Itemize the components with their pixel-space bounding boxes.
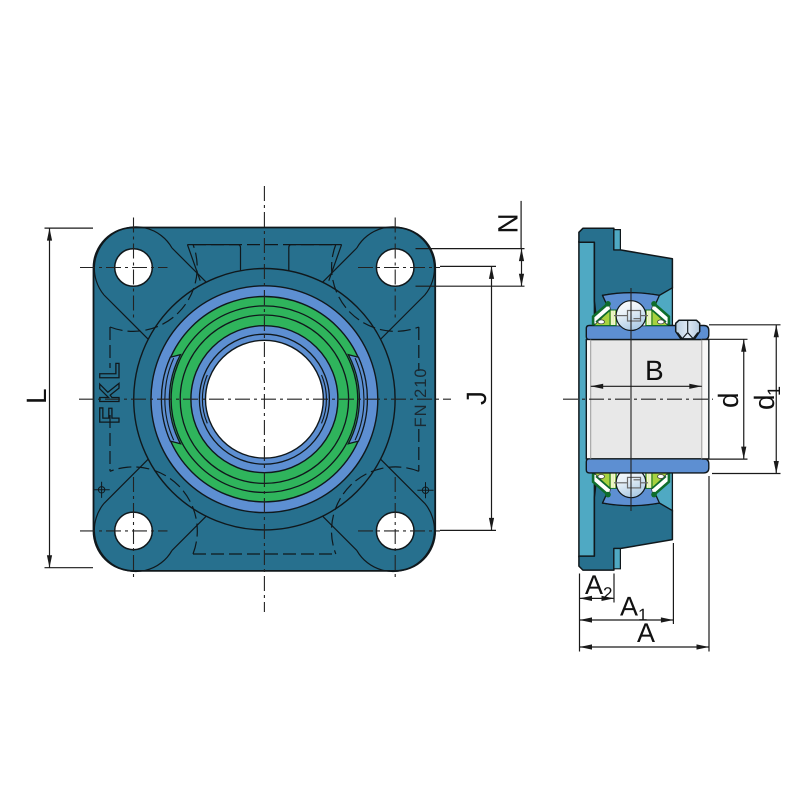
svg-text:A: A xyxy=(585,570,603,600)
svg-text:A: A xyxy=(637,618,655,648)
svg-text:1: 1 xyxy=(764,386,784,396)
svg-text:d: d xyxy=(713,392,744,408)
svg-text:2: 2 xyxy=(603,584,612,603)
svg-text:A: A xyxy=(620,592,638,622)
svg-text:N: N xyxy=(492,213,523,233)
svg-text:J: J xyxy=(461,391,492,405)
svg-text:B: B xyxy=(645,355,664,386)
svg-text:FN 210: FN 210 xyxy=(412,367,430,427)
svg-text:FKL: FKL xyxy=(94,359,125,424)
svg-text:L: L xyxy=(21,388,52,404)
